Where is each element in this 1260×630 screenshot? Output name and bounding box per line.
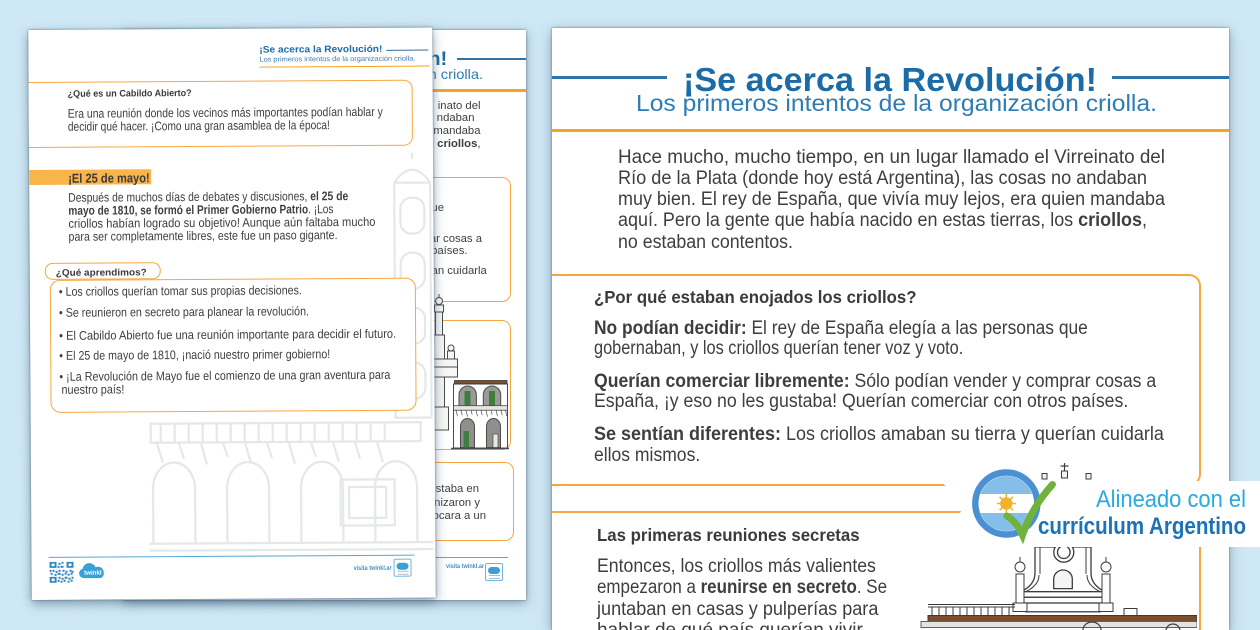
svg-text:twinkl: twinkl xyxy=(84,569,102,576)
